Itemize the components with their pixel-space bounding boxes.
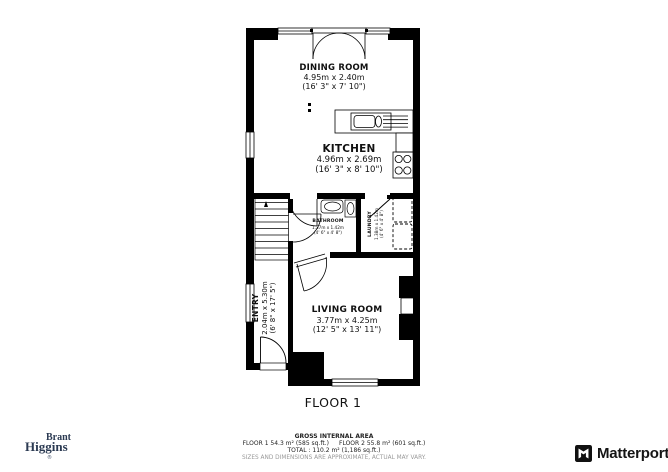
living-room-door xyxy=(294,254,327,291)
room-dims-imperial: (12' 5" x 13' 11") xyxy=(287,325,407,334)
room-dims-imperial: (6' 8" x 17' 5") xyxy=(269,260,277,356)
room-dims-imperial: (4' 6" x 4' 8") xyxy=(379,195,384,253)
room-dims-metric: 2.04m x 5.30m xyxy=(261,260,269,356)
room-dims-metric: 3.77m x 4.25m xyxy=(287,316,407,325)
room-name: DINING ROOM xyxy=(274,63,394,73)
matterport-logo-icon xyxy=(575,445,592,462)
floor-plan-page: DINING ROOM 4.95m x 2.40m (16' 3" x 7' 1… xyxy=(0,0,668,472)
toilet-fixture xyxy=(321,200,343,213)
room-dims-imperial: (4' 6" x 4' 8") xyxy=(296,230,360,235)
room-label-entry: ENTRY 2.04m x 5.30m (6' 8" x 17' 5") xyxy=(252,260,286,356)
area-floors-line: FLOOR 1 54.3 m² (585 sq.ft.)FLOOR 2 55.8… xyxy=(134,440,534,447)
room-label-bathroom: BATHROOM 1.37m x 1.42m (4' 6" x 4' 8") xyxy=(296,219,360,235)
matterport-logo: Matterport xyxy=(575,445,668,462)
room-name: KITCHEN xyxy=(289,143,409,155)
plan-marks xyxy=(308,103,311,112)
room-name: LIVING ROOM xyxy=(287,305,407,316)
matterport-wordmark: Matterport xyxy=(597,445,668,462)
agency-name-line2: Higgins xyxy=(25,439,68,455)
room-dims-metric: 4.95m x 2.40m xyxy=(274,73,394,82)
area-title: GROSS INTERNAL AREA xyxy=(134,433,534,440)
stairs xyxy=(255,196,289,260)
floor-title: FLOOR 1 xyxy=(233,395,433,410)
registered-mark: ® xyxy=(47,455,52,461)
room-dims-imperial: (16' 3" x 7' 10") xyxy=(274,82,394,91)
area-floor1: FLOOR 1 54.3 m² (585 sq.ft.) xyxy=(243,440,329,447)
french-doors xyxy=(310,28,368,59)
room-name: ENTRY xyxy=(252,260,261,356)
laundry-appliances xyxy=(393,197,412,249)
area-total: TOTAL : 110.2 m² (1,186 sq.ft.) xyxy=(134,447,534,454)
room-label-laundry: LAUNDRY 1.38m x 1.42m (4' 6" x 4' 8") xyxy=(368,195,388,253)
basin-fixture xyxy=(345,200,356,217)
room-label-living: LIVING ROOM 3.77m x 4.25m (12' 5" x 13' … xyxy=(287,305,407,334)
room-label-dining: DINING ROOM 4.95m x 2.40m (16' 3" x 7' 1… xyxy=(274,63,394,92)
area-disclaimer: SIZES AND DIMENSIONS ARE APPROXIMATE, AC… xyxy=(134,455,534,462)
area-floor2: FLOOR 2 55.8 m² (601 sq.ft.) xyxy=(339,440,425,447)
gross-internal-area: GROSS INTERNAL AREA FLOOR 1 54.3 m² (585… xyxy=(134,433,534,462)
room-dims-imperial: (16' 3" x 8' 10") xyxy=(289,165,409,175)
room-dims-metric: 4.96m x 2.69m xyxy=(289,155,409,165)
room-label-kitchen: KITCHEN 4.96m x 2.69m (16' 3" x 8' 10") xyxy=(289,143,409,175)
